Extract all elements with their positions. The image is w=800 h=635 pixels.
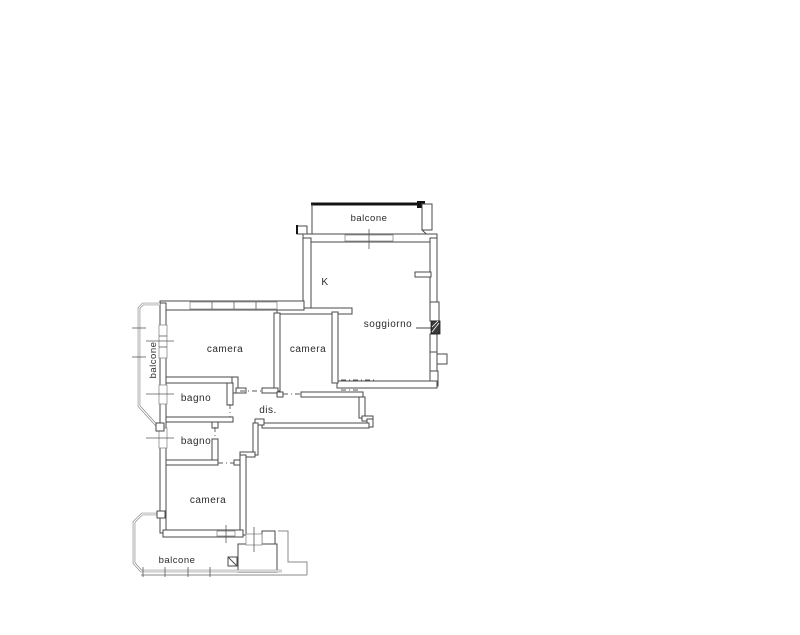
room-label-balcone-top: balcone: [351, 213, 388, 224]
room-label-soggiorno: soggiorno: [364, 319, 412, 330]
room-label-camera-middle: camera: [290, 344, 326, 355]
camera-bottom-walls: [163, 525, 243, 543]
corridor-walls: [240, 397, 373, 535]
room-label-camera-bottom: camera: [190, 495, 226, 506]
room-label-balcone-left: balcone: [148, 342, 159, 379]
room-label-bagno-lower: bagno: [181, 436, 211, 447]
room-label-kitchen: K: [321, 277, 328, 288]
entry-door: [416, 321, 440, 334]
room-label-balcone-bottom: balcone: [159, 555, 196, 566]
floor-plan-drawing: balcone K soggiorno camera camera balcon…: [0, 0, 800, 635]
floor-plan-page: balcone K soggiorno camera camera balcon…: [0, 0, 800, 635]
room-label-bagno-upper: bagno: [181, 393, 211, 404]
room-label-camera-left: camera: [207, 344, 243, 355]
soggiorno-top-window: [345, 229, 393, 249]
room-label-disimpegno: dis.: [259, 405, 277, 416]
upper-block-walls: [277, 234, 447, 388]
